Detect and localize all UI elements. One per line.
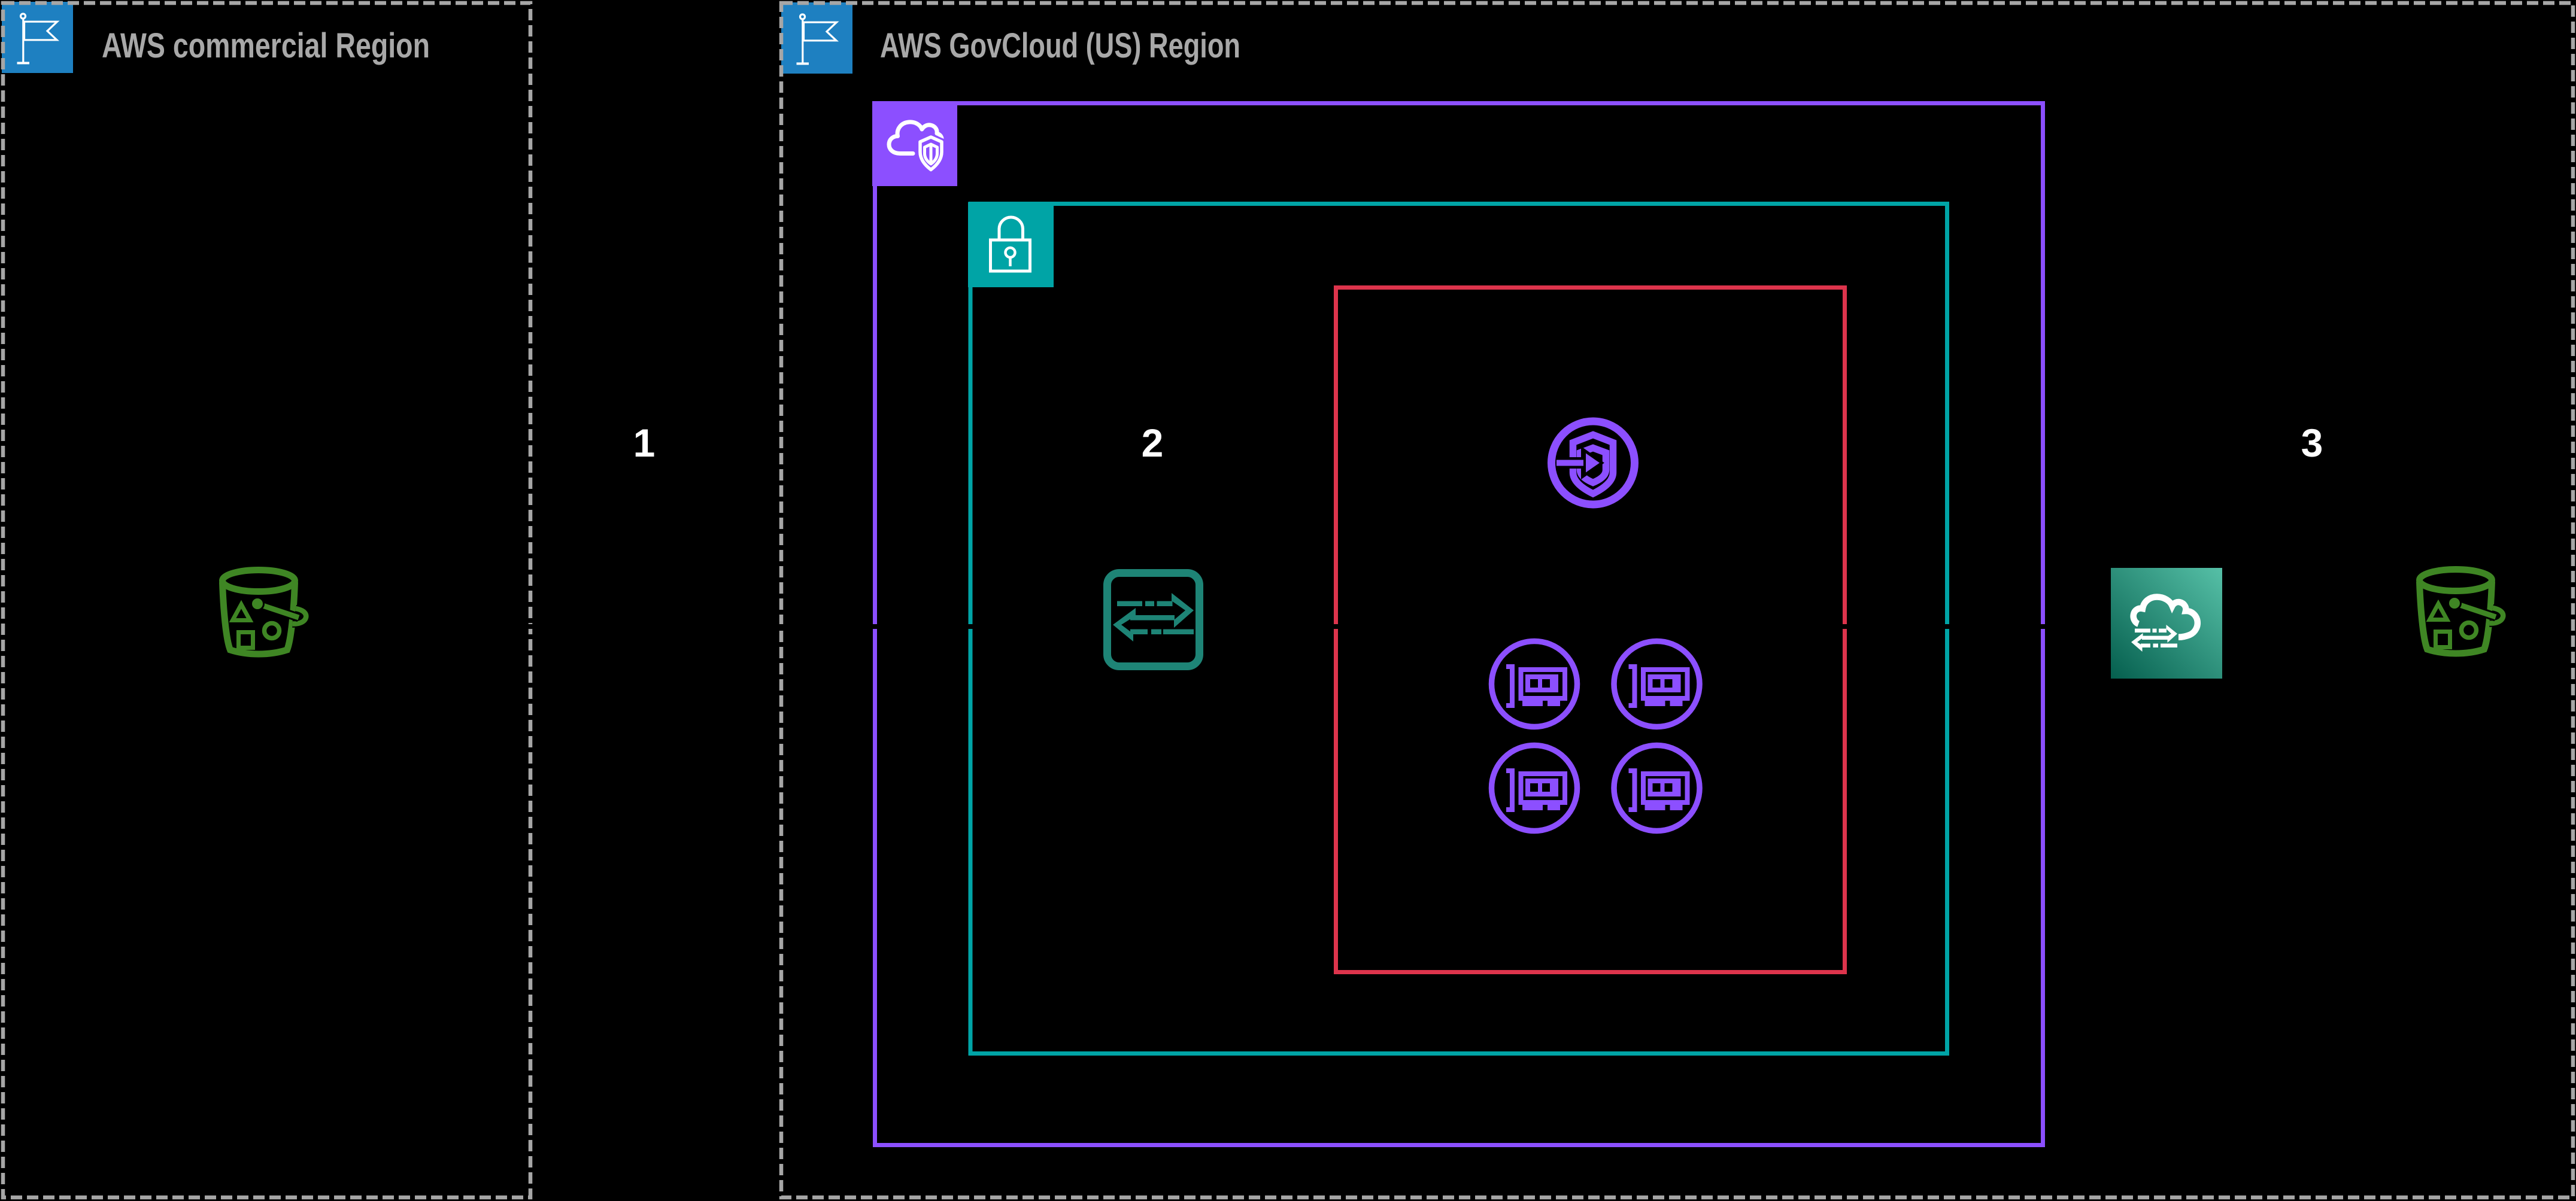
svg-text:AWS GovCloud (US) Region: AWS GovCloud (US) Region [880, 26, 1240, 65]
svg-text:3: 3 [2301, 421, 2323, 465]
svg-text:2: 2 [1142, 421, 1164, 465]
svg-text:1: 1 [633, 421, 656, 465]
svg-text:AWS commercial Region: AWS commercial Region [102, 26, 430, 65]
